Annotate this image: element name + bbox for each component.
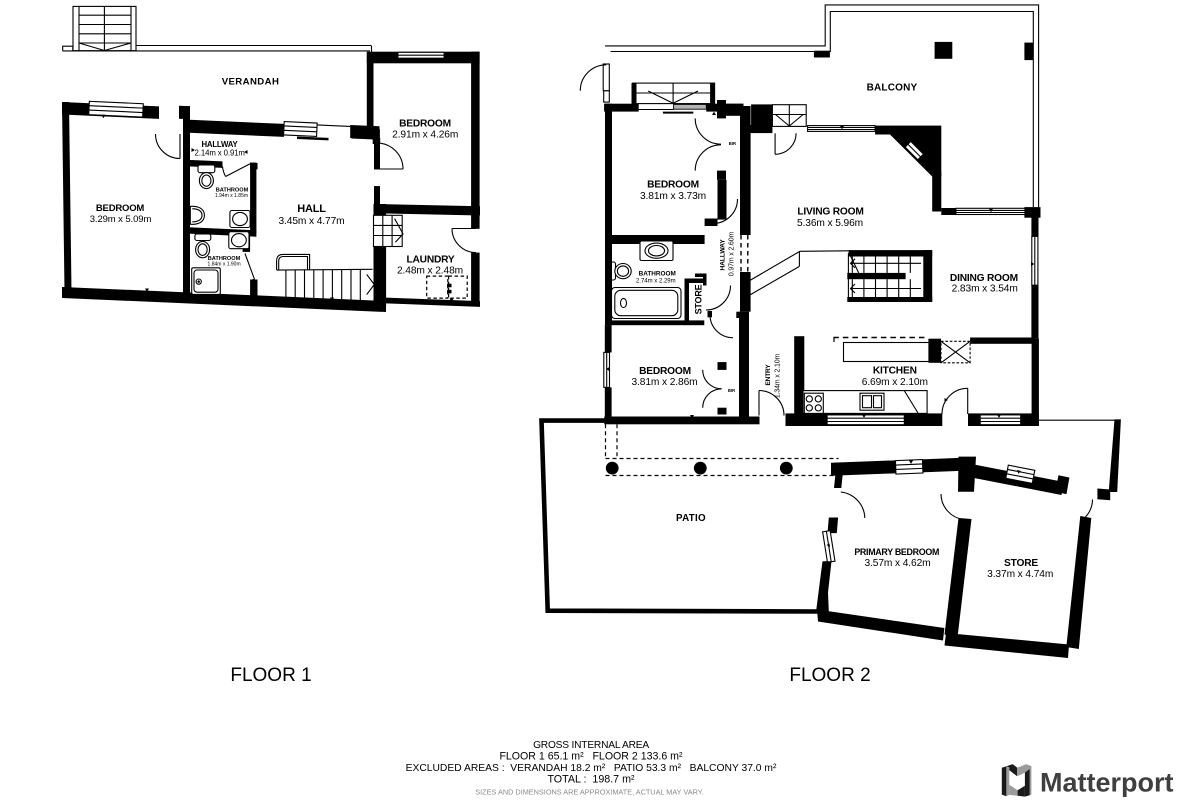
svg-text:STORE: STORE: [694, 284, 704, 314]
svg-text:TOTAL : 198.7 m²: TOTAL : 198.7 m²: [547, 774, 635, 786]
svg-text:3.45m x 4.77m: 3.45m x 4.77m: [278, 216, 344, 227]
svg-text:HALL: HALL: [297, 203, 326, 215]
svg-text:3.37m x 4.74m: 3.37m x 4.74m: [987, 569, 1053, 580]
svg-text:FLOOR 2: FLOOR 2: [789, 665, 870, 686]
svg-text:1.34m x 2.10m: 1.34m x 2.10m: [774, 354, 781, 399]
svg-text:BEDROOM: BEDROOM: [399, 118, 451, 129]
svg-text:BEDROOM: BEDROOM: [639, 366, 691, 377]
svg-text:LAUNDRY: LAUNDRY: [406, 255, 454, 266]
svg-text:3.81m x 2.86m: 3.81m x 2.86m: [631, 377, 697, 388]
svg-text:1.84m x 1.90m: 1.84m x 1.90m: [208, 262, 241, 268]
svg-text:3.81m x 3.73m: 3.81m x 3.73m: [640, 191, 706, 202]
svg-text:Matterport: Matterport: [1040, 768, 1174, 798]
svg-text:EXCLUDED AREAS : VERANDAH 18.: EXCLUDED AREAS : VERANDAH 18.2 m² PATIO …: [406, 763, 777, 774]
svg-text:BEDROOM: BEDROOM: [96, 203, 144, 214]
svg-text:PRIMARY BEDROOM: PRIMARY BEDROOM: [854, 547, 939, 557]
svg-text:2.91m x 4.26m: 2.91m x 4.26m: [392, 129, 458, 140]
svg-text:2.74m x 2.29m: 2.74m x 2.29m: [636, 279, 676, 285]
svg-text:HALLWAY: HALLWAY: [719, 239, 726, 271]
svg-text:FLOOR 1: FLOOR 1: [230, 665, 311, 686]
svg-text:BALCONY: BALCONY: [867, 83, 918, 94]
svg-text:GROSS INTERNAL AREA: GROSS INTERNAL AREA: [533, 740, 649, 751]
svg-text:ENTRY: ENTRY: [765, 364, 772, 386]
svg-text:2.48m x 2.48m: 2.48m x 2.48m: [397, 265, 463, 276]
svg-text:FLOOR 1 65.1 m² FLOOR 2 133.: FLOOR 1 65.1 m² FLOOR 2 133.6 m²: [499, 750, 683, 762]
svg-text:2.14m x 0.91m: 2.14m x 0.91m: [195, 149, 245, 158]
svg-text:3.57m x 4.62m: 3.57m x 4.62m: [864, 558, 930, 569]
svg-text:PATIO: PATIO: [676, 513, 706, 524]
svg-text:0.97m x 2.60m: 0.97m x 2.60m: [728, 232, 735, 277]
svg-text:2.83m x 3.54m: 2.83m x 3.54m: [952, 284, 1018, 295]
svg-text:LIVING ROOM: LIVING ROOM: [797, 207, 863, 218]
svg-text:KITCHEN: KITCHEN: [873, 366, 917, 377]
svg-text:BIR: BIR: [728, 388, 735, 393]
svg-text:BIR: BIR: [729, 141, 736, 146]
svg-text:SIZES AND DIMENSIONS ARE APPRO: SIZES AND DIMENSIONS ARE APPROXIMATE, AC…: [475, 787, 703, 796]
svg-text:5.36m x 5.96m: 5.36m x 5.96m: [797, 218, 863, 229]
svg-text:3.29m x 5.09m: 3.29m x 5.09m: [90, 214, 152, 225]
svg-text:VERANDAH: VERANDAH: [222, 77, 280, 88]
svg-text:1.94m x 1.85m: 1.94m x 1.85m: [215, 193, 248, 199]
svg-text:6.69m x 2.10m: 6.69m x 2.10m: [862, 377, 928, 388]
svg-text:STORE: STORE: [1004, 558, 1038, 569]
svg-text:BATHROOM: BATHROOM: [639, 270, 676, 277]
svg-text:BEDROOM: BEDROOM: [647, 180, 699, 191]
svg-text:DINING ROOM: DINING ROOM: [950, 273, 1018, 284]
svg-text:HALLWAY: HALLWAY: [201, 140, 238, 149]
